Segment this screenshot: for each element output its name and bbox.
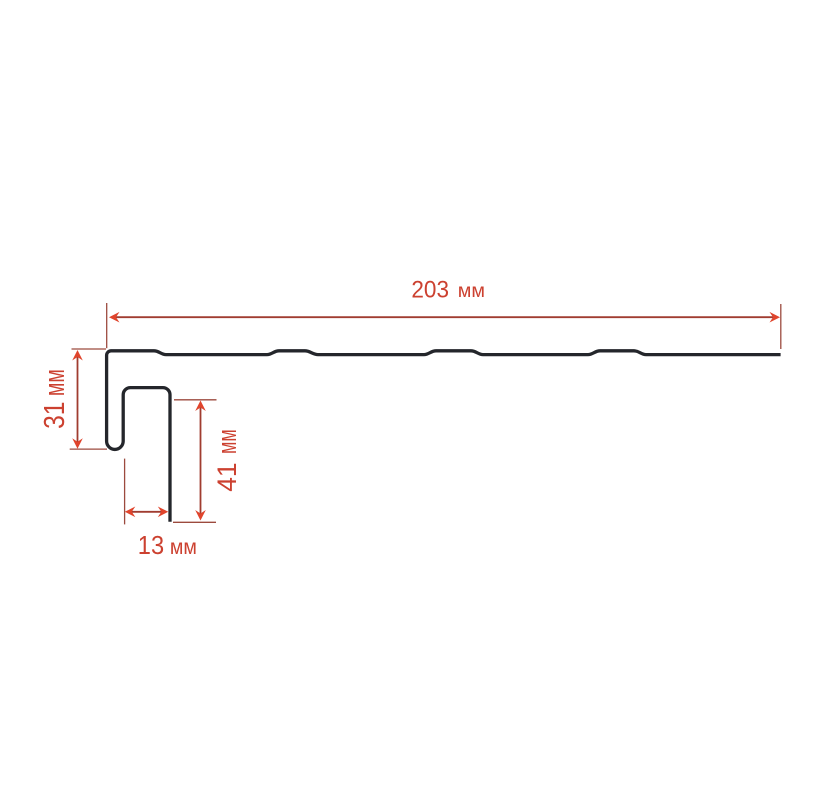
svg-text:203: 203 xyxy=(411,276,449,303)
svg-text:13: 13 xyxy=(138,530,164,560)
svg-text:мм: мм xyxy=(170,536,197,559)
svg-text:мм: мм xyxy=(458,281,485,302)
